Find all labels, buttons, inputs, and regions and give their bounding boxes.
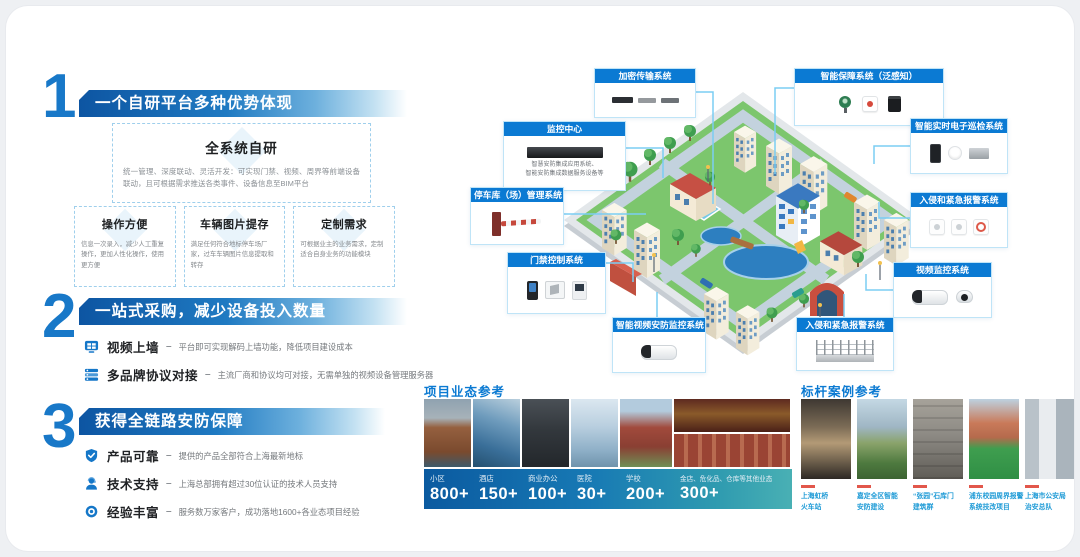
bullet-reliable-product: 产品可靠 – 提供的产品全部符合上海最新地标 bbox=[84, 446, 360, 465]
section-3-bullets: 产品可靠 – 提供的产品全部符合上海最新地标 技术支持 – 上海总部拥有超过30… bbox=[84, 446, 360, 530]
red-dash bbox=[969, 485, 983, 488]
case-photo bbox=[801, 399, 851, 479]
caption-line: 智能安防集成数据服务设备等 bbox=[525, 170, 603, 179]
stat-label: 酒店 bbox=[479, 473, 520, 484]
red-dash bbox=[857, 485, 871, 488]
hotel-photo bbox=[473, 399, 520, 467]
multi-brand-icon bbox=[84, 367, 99, 382]
section-1-number: 1 bbox=[42, 66, 74, 128]
callout-patrol-system: 智能实时电子巡检系统 bbox=[910, 118, 1008, 174]
red-dash bbox=[1025, 485, 1039, 488]
stat-label: 学校 bbox=[626, 473, 672, 484]
detector-cylinder-icon bbox=[888, 96, 901, 112]
callout-intrusion-alarm-bottom: 入侵和紧急报警系统 bbox=[796, 317, 894, 371]
case-photo bbox=[969, 399, 1019, 479]
callout-title: 加密传输系统 bbox=[595, 69, 695, 83]
case-label-line: 治安总队 bbox=[1025, 503, 1074, 514]
case-photo bbox=[913, 399, 963, 479]
bullet-camera-icon bbox=[641, 345, 677, 360]
bullet-label: 技术支持 bbox=[107, 474, 159, 493]
stat-count: 200+ bbox=[626, 485, 672, 504]
callout-smart-video-surveillance: 智能视频安防监控系统 bbox=[612, 317, 706, 373]
stat-office: 商业办公 100+ bbox=[522, 469, 569, 509]
stat-hospital: 医院 30+ bbox=[571, 469, 618, 509]
stat-label: 金店、危化品、仓库等其他业态 bbox=[680, 473, 790, 483]
case-photo bbox=[857, 399, 907, 479]
section-1-title: 一个自研平台多种优势体现 bbox=[95, 95, 293, 112]
case-hongqiao-station: 上海虹桥火车站 bbox=[801, 399, 851, 513]
card-title: 操作方便 bbox=[81, 216, 169, 232]
nvr-server-icon bbox=[527, 147, 603, 158]
network-switch-icon bbox=[638, 98, 656, 103]
section-1-header: 一个自研平台多种优势体现 bbox=[79, 90, 407, 117]
jewelry-store-photo bbox=[674, 399, 790, 432]
stat-count: 150+ bbox=[479, 485, 520, 504]
stat-residential: 小区 800+ bbox=[424, 469, 471, 509]
section-2-title: 一站式采购，减少设备投入数量 bbox=[95, 303, 326, 320]
callout-title: 入侵和紧急报警系统 bbox=[797, 318, 893, 332]
school-photo bbox=[620, 399, 672, 467]
case-photo bbox=[1025, 399, 1074, 479]
section-2-bullets: 视频上墙 – 平台即可实现解码上墙功能，降低项目建设成本 多品牌协议对接 – 主… bbox=[84, 337, 433, 393]
slide-canvas: 1 一个自研平台多种优势体现 全系统自研 统一管理、深度联动、灵活开发：可实现门… bbox=[0, 0, 1080, 557]
case-label-line: 安防建设 bbox=[857, 503, 907, 514]
callout-title: 智能实时电子巡检系统 bbox=[911, 119, 1007, 133]
section-3-header: 获得全链路安防保障 bbox=[79, 408, 385, 435]
case-zhangyuan-shikumen: “张园”石库门建筑群 bbox=[913, 399, 963, 513]
callout-encrypted-transmission: 加密传输系统 bbox=[594, 68, 696, 118]
shield-check-icon bbox=[84, 448, 99, 463]
stat-hotel: 酒店 150+ bbox=[473, 469, 520, 509]
bullet-multi-brand: 多品牌协议对接 – 主流厂商和协议均可对接，无需单独的视频设备管理服务器 bbox=[84, 365, 433, 384]
callout-parking-management: 停车库（场）管理系统 bbox=[470, 187, 564, 245]
bullet-camera-icon bbox=[912, 290, 948, 305]
reader-box-icon bbox=[969, 148, 989, 159]
alarm-device-icon bbox=[951, 219, 967, 235]
separator: – bbox=[166, 478, 172, 489]
case-label-line: 系统技改项目 bbox=[969, 503, 1019, 514]
case-jiading-security: 嘉定全区智能安防建设 bbox=[857, 399, 907, 513]
case-label-line: 建筑群 bbox=[913, 503, 963, 514]
case-list: 上海虹桥火车站 嘉定全区智能安防建设 “张园”石库门建筑群 浦东校园周界报警系统… bbox=[801, 399, 1074, 513]
case-label-line: 上海市公安局 bbox=[1025, 492, 1074, 503]
slide: 1 一个自研平台多种优势体现 全系统自研 统一管理、深度联动、灵活开发：可实现门… bbox=[6, 6, 1074, 551]
network-switch-icon bbox=[612, 97, 633, 103]
alarm-button-icon bbox=[973, 219, 989, 235]
stat-count: 100+ bbox=[528, 485, 569, 504]
section-2-header: 一站式采购，减少设备投入数量 bbox=[79, 298, 407, 325]
bullet-desc: 平台即可实现解码上墙功能，降低项目建设成本 bbox=[179, 341, 353, 353]
section-3-title: 获得全链路安防保障 bbox=[95, 413, 244, 430]
target-icon bbox=[84, 504, 99, 519]
hospital-photo bbox=[571, 399, 618, 467]
stat-other: 金店、危化品、仓库等其他业态 300+ bbox=[674, 469, 790, 509]
callout-title: 门禁控制系统 bbox=[508, 253, 605, 267]
project-stats-bar: 小区 800+ 酒店 150+ 商业办公 100+ 医院 30+ 学校 200+… bbox=[424, 469, 792, 509]
bullet-desc: 上海总部拥有超过30位认证的技术人员支持 bbox=[179, 478, 338, 490]
electric-fence-icon bbox=[816, 340, 874, 362]
red-dash bbox=[913, 485, 927, 488]
card-desc: 信息一次录入，减少人工重复操作，更加人性化操作，使用更方便 bbox=[81, 240, 169, 271]
monitor-center-caption: 智慧安防集成应用系统、 智能安防集成数据服务设备等 bbox=[525, 161, 603, 179]
callout-monitor-center: 监控中心 智慧安防集成应用系统、 智能安防集成数据服务设备等 bbox=[503, 121, 626, 191]
bullet-tech-support: 技术支持 – 上海总部拥有超过30位认证的技术人员支持 bbox=[84, 474, 360, 493]
stat-count: 800+ bbox=[430, 485, 471, 504]
section-3-number: 3 bbox=[42, 396, 74, 458]
card-easy-operation: 操作方便 信息一次录入，减少人工重复操作，更加人性化操作，使用更方便 bbox=[74, 206, 176, 287]
advantage-cards: 操作方便 信息一次录入，减少人工重复操作，更加人性化操作，使用更方便 车辆图片提… bbox=[74, 206, 395, 287]
stat-label: 小区 bbox=[430, 473, 471, 484]
network-switch-icon bbox=[661, 98, 679, 103]
desk-terminal-icon bbox=[572, 281, 587, 300]
face-terminal-icon bbox=[527, 281, 538, 300]
callout-title: 智能视频安防监控系统 bbox=[613, 318, 705, 332]
other-business-photos bbox=[674, 399, 790, 467]
callout-title: 视频监控系统 bbox=[894, 263, 991, 277]
barrier-gate-icon bbox=[490, 210, 544, 236]
bullet-desc: 服务数万家客户，成功落地1600+各业态项目经验 bbox=[179, 506, 360, 518]
red-dash bbox=[801, 485, 815, 488]
speed-gate-icon bbox=[545, 281, 565, 299]
residential-photo bbox=[424, 399, 471, 467]
card-vehicle-image: 车辆图片提存 满足任何符合地标停车场厂家，过车车辆图片信息提取和转存 bbox=[184, 206, 286, 287]
case-label-line: 上海虹桥 bbox=[801, 492, 851, 503]
separator: – bbox=[205, 369, 211, 380]
bullet-desc: 主流厂商和协议均可对接，无需单独的视频设备管理服务器 bbox=[218, 369, 434, 381]
callout-title: 停车库（场）管理系统 bbox=[471, 188, 563, 202]
stat-label: 医院 bbox=[577, 473, 618, 484]
patrol-phone-icon bbox=[930, 144, 941, 163]
support-agent-icon bbox=[84, 476, 99, 491]
card-title: 定制需求 bbox=[300, 216, 388, 232]
separator: – bbox=[166, 506, 172, 517]
video-wall-icon bbox=[84, 339, 99, 354]
stat-count: 30+ bbox=[577, 485, 618, 504]
callout-title: 入侵和紧急报警系统 bbox=[911, 193, 1007, 207]
bullet-video-wall: 视频上墙 – 平台即可实现解码上墙功能，降低项目建设成本 bbox=[84, 337, 433, 356]
callout-title: 智能保障系统（泛感知） bbox=[795, 69, 943, 83]
stat-count: 300+ bbox=[680, 484, 790, 503]
bullet-label: 视频上墙 bbox=[107, 337, 159, 356]
panel-title: 全系统自研 bbox=[113, 137, 370, 157]
section-2-number: 2 bbox=[42, 286, 74, 348]
stat-label: 商业办公 bbox=[528, 473, 569, 484]
bullet-label: 多品牌协议对接 bbox=[107, 365, 198, 384]
office-photo bbox=[522, 399, 569, 467]
checkpoint-tag-icon bbox=[948, 146, 962, 160]
separator: – bbox=[166, 341, 172, 352]
bullet-label: 产品可靠 bbox=[107, 446, 159, 465]
card-desc: 满足任何符合地标停车场厂家，过车车辆图片信息提取和转存 bbox=[191, 240, 279, 271]
self-developed-panel: 全系统自研 统一管理、深度联动、灵活开发：可实现门禁、视频、周界等前端设备联动，… bbox=[112, 123, 371, 203]
dome-camera-icon bbox=[956, 290, 973, 304]
callout-intrusion-alarm-right: 入侵和紧急报警系统 bbox=[910, 192, 1008, 248]
callout-title: 监控中心 bbox=[504, 122, 625, 136]
warehouse-photo bbox=[674, 434, 790, 467]
callout-access-control: 门禁控制系统 bbox=[507, 252, 606, 314]
panic-button-icon bbox=[862, 96, 878, 112]
case-label-line: “张园”石库门 bbox=[913, 492, 963, 503]
callout-video-monitor: 视频监控系统 bbox=[893, 262, 992, 318]
projects-title: 项目业态参考 bbox=[424, 381, 505, 400]
case-label-line: 浦东校园周界报警 bbox=[969, 492, 1019, 503]
stat-school: 学校 200+ bbox=[620, 469, 672, 509]
bullet-desc: 提供的产品全部符合上海最新地标 bbox=[179, 450, 303, 462]
alarm-device-icon bbox=[929, 219, 945, 235]
case-label-line: 嘉定全区智能 bbox=[857, 492, 907, 503]
separator: – bbox=[166, 450, 172, 461]
card-custom-needs: 定制需求 可根据业主的业务需求，定制适合自身业务的功能模块 bbox=[293, 206, 395, 287]
bullet-label: 经验丰富 bbox=[107, 502, 159, 521]
panel-desc: 统一管理、深度联动、灵活开发：可实现门禁、视频、周界等前端设备联动，且可根据需求… bbox=[123, 166, 360, 191]
project-images bbox=[424, 399, 792, 467]
cases-title: 标杆案例参考 bbox=[801, 381, 882, 400]
caption-line: 智慧安防集成应用系统、 bbox=[525, 161, 603, 170]
card-desc: 可根据业主的业务需求，定制适合自身业务的功能模块 bbox=[300, 240, 388, 261]
case-label-line: 火车站 bbox=[801, 503, 851, 514]
case-shanghai-police: 上海市公安局治安总队 bbox=[1025, 399, 1074, 513]
bullet-rich-experience: 经验丰富 – 服务数万家客户，成功落地1600+各业态项目经验 bbox=[84, 502, 360, 521]
gas-sensor-icon bbox=[838, 96, 852, 113]
case-pudong-campus: 浦东校园周界报警系统技改项目 bbox=[969, 399, 1019, 513]
card-title: 车辆图片提存 bbox=[191, 216, 279, 232]
